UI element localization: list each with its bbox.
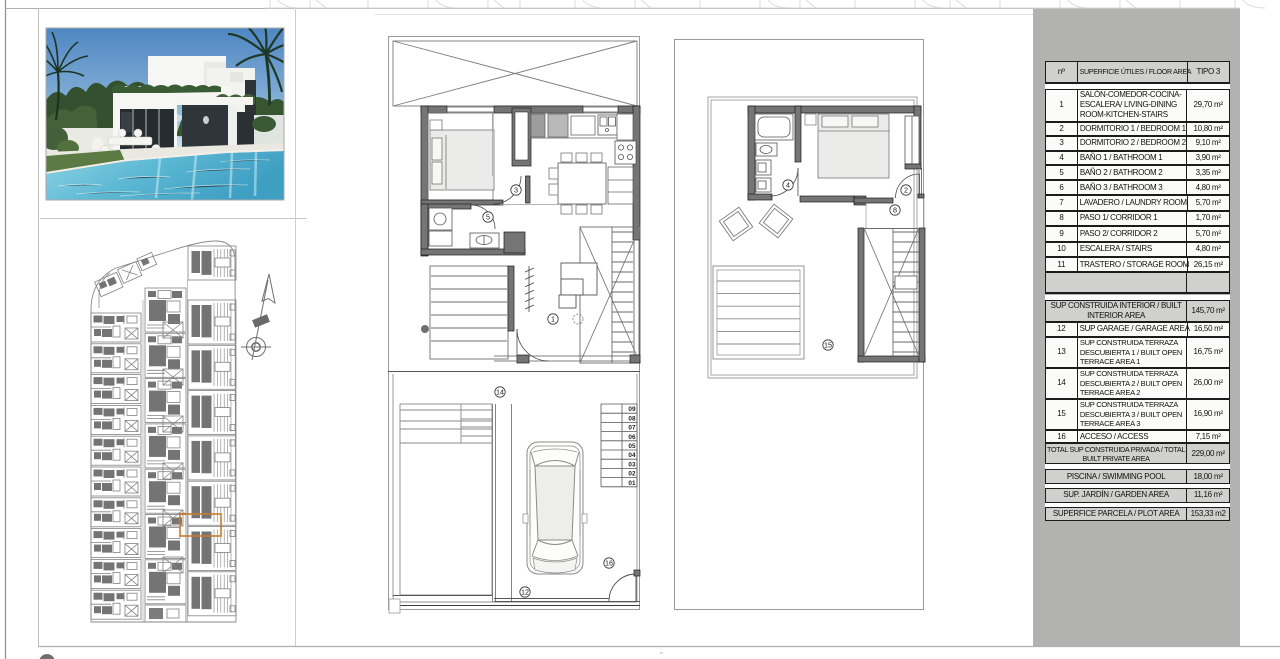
svg-text:05: 05	[628, 443, 636, 450]
svg-text:4: 4	[786, 180, 790, 189]
svg-text:08: 08	[628, 415, 636, 422]
svg-text:15: 15	[824, 340, 832, 349]
svg-text:5: 5	[486, 212, 490, 221]
svg-text:04: 04	[628, 452, 636, 459]
svg-text:3: 3	[514, 185, 518, 194]
svg-text:2: 2	[904, 185, 908, 194]
svg-text:8: 8	[893, 205, 897, 214]
svg-text:ˆ: ˆ	[660, 651, 663, 659]
svg-text:02: 02	[628, 471, 636, 478]
svg-text:16: 16	[605, 558, 613, 567]
svg-text:07: 07	[628, 425, 636, 432]
svg-text:14: 14	[496, 387, 504, 396]
svg-text:12: 12	[521, 587, 529, 596]
svg-text:1: 1	[551, 314, 555, 323]
svg-text:01: 01	[628, 480, 636, 487]
svg-text:09: 09	[628, 406, 636, 413]
svg-text:06: 06	[628, 434, 636, 441]
svg-text:03: 03	[628, 461, 636, 468]
